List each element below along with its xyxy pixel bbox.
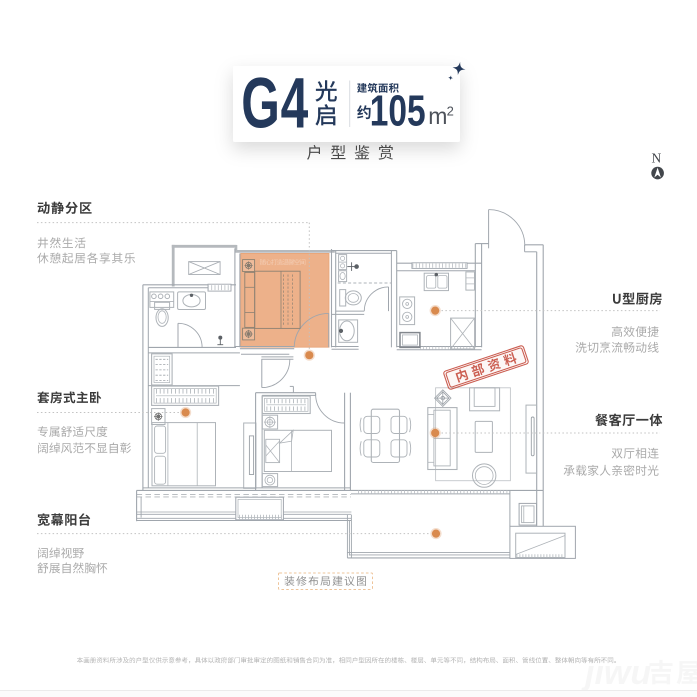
svg-text:jiwu: jiwu bbox=[581, 654, 651, 692]
svg-text:105: 105 bbox=[370, 88, 426, 136]
svg-text:N: N bbox=[652, 151, 662, 166]
svg-text:m: m bbox=[428, 103, 447, 129]
svg-text:G4: G4 bbox=[241, 64, 309, 143]
svg-text:2: 2 bbox=[447, 104, 454, 119]
